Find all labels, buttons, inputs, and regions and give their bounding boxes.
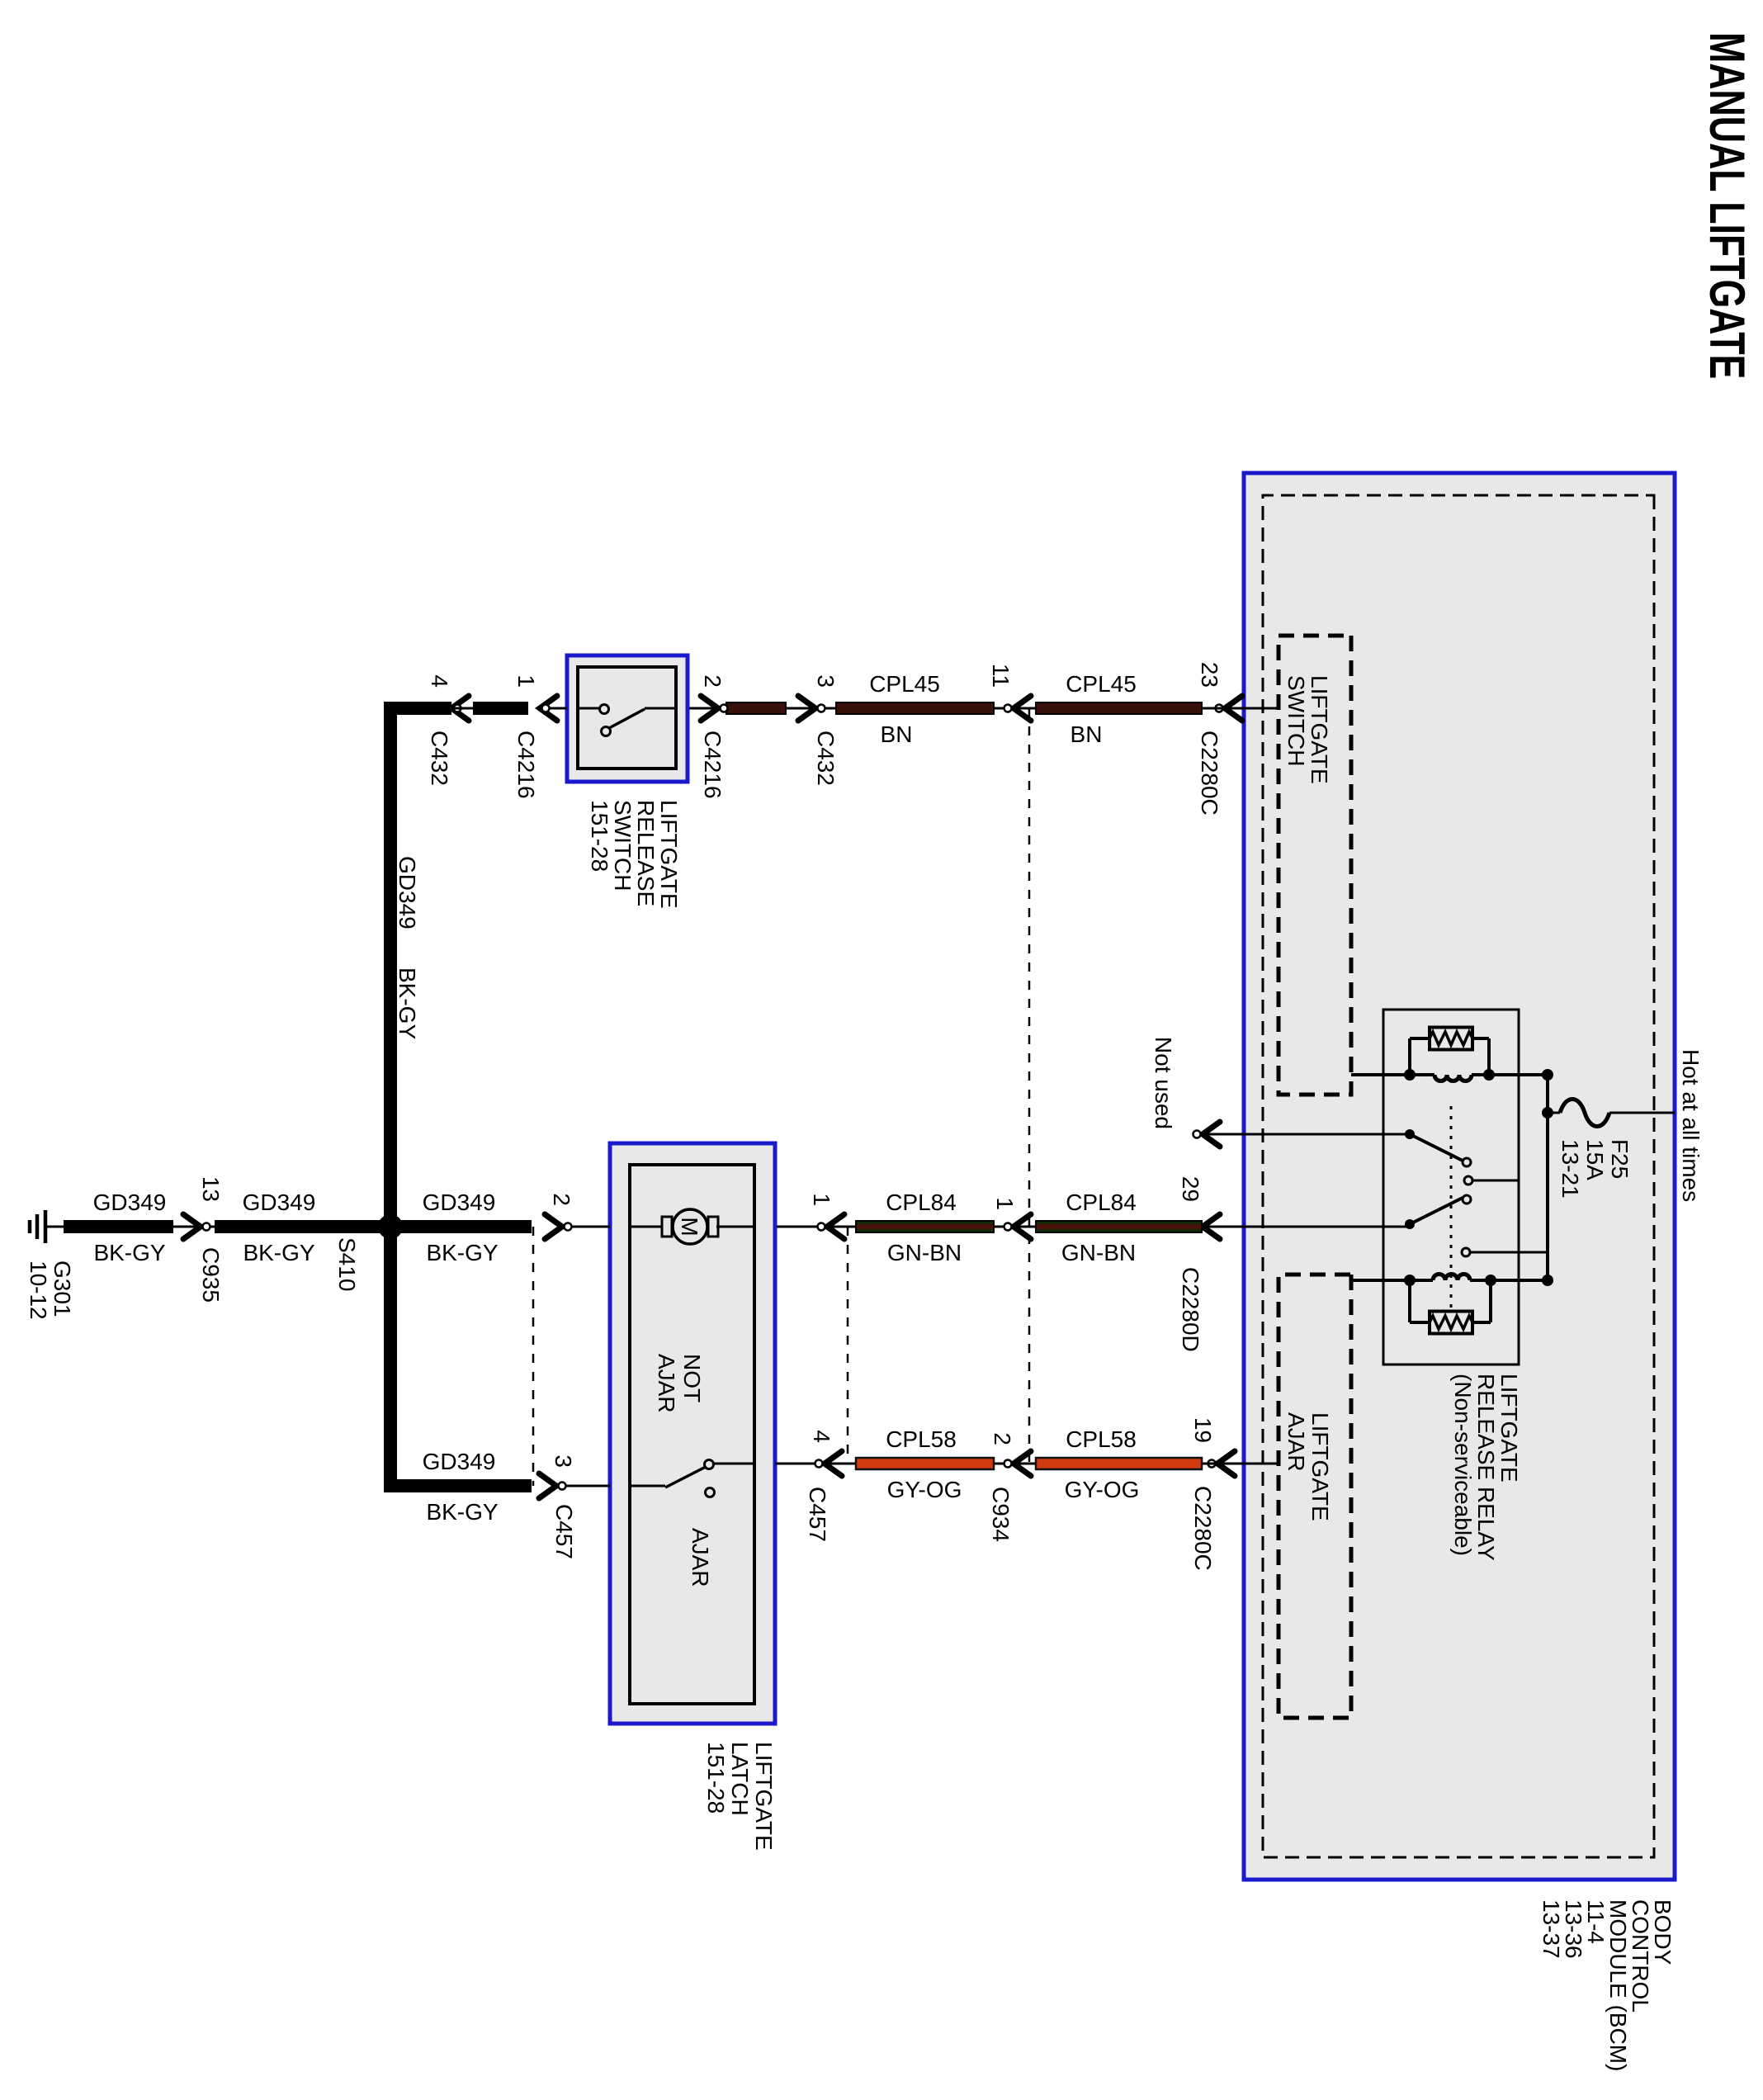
svg-text:RELEASE: RELEASE xyxy=(633,800,659,906)
svg-text:13-21: 13-21 xyxy=(1557,1139,1583,1199)
svg-text:GD349: GD349 xyxy=(93,1190,167,1215)
svg-text:CPL58: CPL58 xyxy=(1066,1426,1137,1452)
svg-text:C2280D: C2280D xyxy=(1178,1267,1203,1352)
svg-text:2: 2 xyxy=(990,1432,1015,1445)
svg-text:11: 11 xyxy=(988,664,1014,688)
svg-text:S410: S410 xyxy=(334,1237,360,1291)
svg-text:13: 13 xyxy=(198,1176,224,1202)
svg-text:MANUAL LIFTGATE: MANUAL LIFTGATE xyxy=(1699,32,1754,379)
svg-text:BK-GY: BK-GY xyxy=(426,1499,498,1525)
svg-text:1: 1 xyxy=(992,1197,1018,1210)
svg-text:(Non-serviceable): (Non-serviceable) xyxy=(1450,1374,1476,1556)
svg-text:AJAR: AJAR xyxy=(654,1354,679,1413)
svg-text:SWITCH: SWITCH xyxy=(610,800,636,891)
svg-text:2: 2 xyxy=(549,1193,574,1206)
svg-text:LIFTGATE: LIFTGATE xyxy=(1307,675,1332,784)
svg-text:Not used: Not used xyxy=(1151,1037,1176,1129)
svg-text:1: 1 xyxy=(809,1193,834,1206)
svg-text:CPL45: CPL45 xyxy=(869,671,940,697)
svg-text:C2280C: C2280C xyxy=(1190,1486,1216,1571)
svg-text:4: 4 xyxy=(427,674,452,688)
svg-text:C4216: C4216 xyxy=(513,731,539,799)
svg-text:BN: BN xyxy=(1071,721,1103,747)
svg-text:4: 4 xyxy=(809,1430,834,1443)
svg-text:SWITCH: SWITCH xyxy=(1283,675,1309,766)
svg-text:C432: C432 xyxy=(813,731,839,786)
svg-text:C934: C934 xyxy=(988,1487,1014,1542)
svg-text:GD349: GD349 xyxy=(423,1449,496,1474)
svg-text:BK-GY: BK-GY xyxy=(93,1240,165,1265)
svg-text:BK-GY: BK-GY xyxy=(243,1240,314,1265)
svg-text:BN: BN xyxy=(881,721,913,747)
svg-text:13-37: 13-37 xyxy=(1538,1899,1564,1959)
svg-text:CPL45: CPL45 xyxy=(1066,671,1137,697)
svg-text:C432: C432 xyxy=(427,731,452,786)
svg-text:1: 1 xyxy=(513,674,539,688)
svg-text:GN-BN: GN-BN xyxy=(887,1240,962,1265)
svg-text:GD349: GD349 xyxy=(395,856,420,929)
svg-text:10-12: 10-12 xyxy=(26,1260,51,1320)
svg-text:BK-GY: BK-GY xyxy=(395,967,420,1039)
svg-text:19: 19 xyxy=(1190,1417,1216,1443)
svg-text:LIFTGATE: LIFTGATE xyxy=(751,1742,777,1851)
svg-text:LATCH: LATCH xyxy=(727,1742,753,1816)
svg-text:C935: C935 xyxy=(198,1247,224,1303)
svg-text:C457: C457 xyxy=(805,1487,830,1542)
svg-text:C457: C457 xyxy=(551,1504,577,1559)
svg-text:LIFTGATE: LIFTGATE xyxy=(1307,1412,1333,1521)
svg-text:G301: G301 xyxy=(50,1260,75,1317)
svg-text:M: M xyxy=(677,1217,702,1236)
svg-text:Hot at all times: Hot at all times xyxy=(1678,1049,1704,1202)
svg-text:GN-BN: GN-BN xyxy=(1061,1240,1136,1265)
svg-text:GD349: GD349 xyxy=(243,1190,316,1215)
svg-text:F25: F25 xyxy=(1607,1139,1633,1179)
svg-text:AJAR: AJAR xyxy=(688,1528,713,1587)
svg-text:C4216: C4216 xyxy=(700,731,726,799)
svg-text:CPL84: CPL84 xyxy=(1066,1190,1137,1215)
svg-text:GD349: GD349 xyxy=(423,1190,496,1215)
svg-text:23: 23 xyxy=(1197,662,1222,688)
svg-text:CPL84: CPL84 xyxy=(886,1190,957,1215)
svg-text:151-28: 151-28 xyxy=(703,1742,729,1814)
svg-text:CPL58: CPL58 xyxy=(886,1426,957,1452)
svg-text:29: 29 xyxy=(1178,1176,1203,1202)
svg-text:3: 3 xyxy=(551,1454,576,1468)
svg-text:LIFTGATE: LIFTGATE xyxy=(1496,1374,1522,1483)
svg-text:RELEASE RELAY: RELEASE RELAY xyxy=(1473,1374,1499,1561)
svg-text:3: 3 xyxy=(813,674,839,688)
svg-text:15A: 15A xyxy=(1582,1139,1608,1180)
svg-text:C2280C: C2280C xyxy=(1197,731,1222,816)
svg-text:151-28: 151-28 xyxy=(587,800,612,872)
svg-text:GY-OG: GY-OG xyxy=(1065,1477,1140,1502)
svg-text:2: 2 xyxy=(700,674,726,688)
svg-text:GY-OG: GY-OG xyxy=(887,1477,962,1502)
svg-text:NOT: NOT xyxy=(679,1354,705,1402)
svg-text:LIFTGATE: LIFTGATE xyxy=(656,800,682,909)
svg-text:BK-GY: BK-GY xyxy=(426,1240,498,1265)
svg-text:AJAR: AJAR xyxy=(1283,1412,1309,1472)
